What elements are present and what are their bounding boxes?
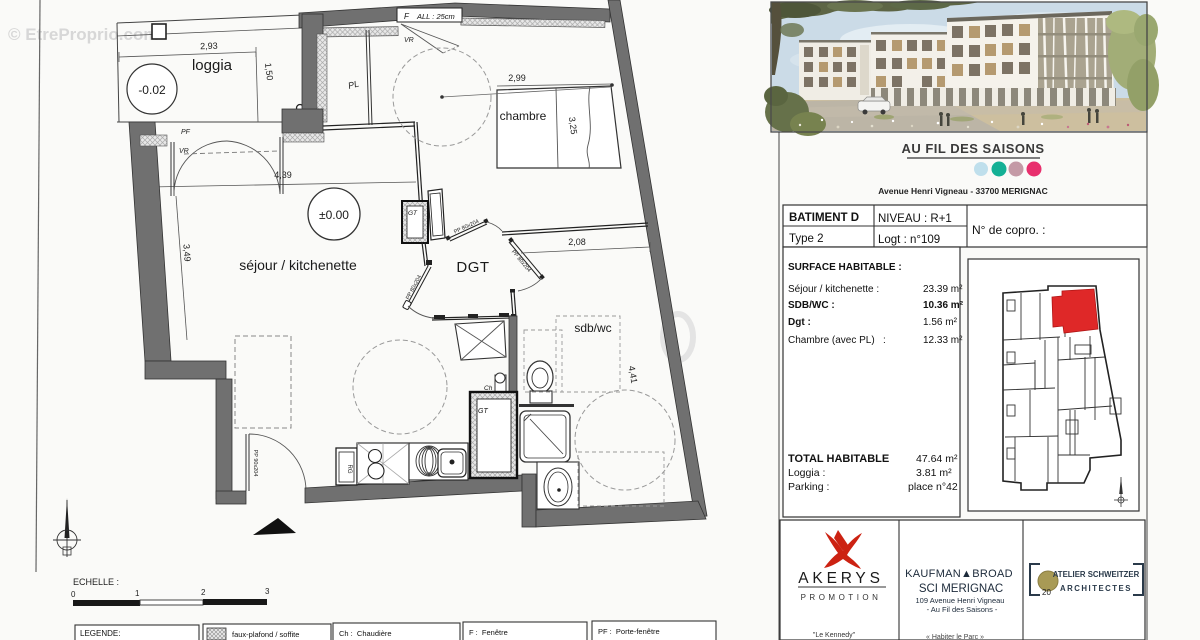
svg-text:© EtreProprio.com: © EtreProprio.com [8,25,158,44]
svg-text:1,50: 1,50 [263,62,275,81]
svg-text:Parking :: Parking : [788,481,829,493]
svg-text:Séjour / kitchenette :: Séjour / kitchenette : [788,284,879,295]
svg-text:20: 20 [1042,588,1051,597]
svg-text:place n°42: place n°42 [908,481,958,493]
svg-text:F : Fenêtre: F : Fenêtre [469,628,508,637]
svg-text:SURFACE HABITABLE :: SURFACE HABITABLE : [788,262,902,273]
svg-text:LEGENDE:: LEGENDE: [80,629,120,638]
svg-text:loggia: loggia [192,57,233,74]
svg-text:GT: GT [408,210,418,217]
svg-text:0: 0 [71,590,76,599]
svg-text:VR: VR [404,37,414,44]
svg-text:ALL : 25cm: ALL : 25cm [416,12,455,21]
svg-text:10.36 m²: 10.36 m² [923,300,964,311]
svg-text:12.33 m²: 12.33 m² [923,335,963,346]
svg-text:Chambre (avec PL) :: Chambre (avec PL) : [788,335,886,346]
svg-text:PF: PF [181,129,191,136]
svg-text:faux-plafond / soffite: faux-plafond / soffite [232,630,299,639]
svg-text:PROMOTION: PROMOTION [801,593,882,602]
svg-text:2,08: 2,08 [568,237,586,247]
svg-text:SDB/WC :: SDB/WC : [788,300,835,311]
svg-text:2,93: 2,93 [200,41,218,52]
svg-text:23.39 m²: 23.39 m² [923,284,963,295]
svg-text:±0.00: ±0.00 [319,208,349,222]
svg-text:"Le Kennedy": "Le Kennedy" [813,632,856,639]
svg-text:Dgt :: Dgt : [788,317,811,328]
svg-text:KAUFMAN▲BROAD: KAUFMAN▲BROAD [905,568,1013,580]
svg-text:3.81 m²: 3.81 m² [916,467,952,479]
svg-text:2,99: 2,99 [508,73,526,83]
svg-text:Logt : n°109: Logt : n°109 [878,234,940,246]
svg-text:Ch : Chaudière: Ch : Chaudière [339,629,392,638]
svg-text:séjour / kitchenette: séjour / kitchenette [239,257,357,273]
svg-text:DGT: DGT [456,259,489,276]
svg-text:AU FIL DES SAISONS: AU FIL DES SAISONS [901,141,1044,156]
svg-text:1.56 m²: 1.56 m² [923,317,958,328]
svg-text:chambre: chambre [500,109,547,123]
svg-text:BATIMENT D: BATIMENT D [789,212,859,224]
svg-text:PF : Porte-fenêtre: PF : Porte-fenêtre [598,627,660,636]
svg-text:RG: RG [346,465,352,474]
svg-text:PP 90x204: PP 90x204 [252,450,258,477]
svg-text:NIVEAU : R+1: NIVEAU : R+1 [878,213,952,225]
svg-text:2: 2 [201,588,206,597]
svg-text:Loggia :: Loggia : [788,467,825,479]
svg-text:1: 1 [135,589,140,598]
svg-text:47.64 m²: 47.64 m² [916,453,958,465]
svg-text:« Habiter le Parc »: « Habiter le Parc » [926,634,984,640]
svg-text:AKERYS: AKERYS [798,570,883,587]
svg-text:ECHELLE :: ECHELLE : [73,577,119,587]
svg-text:-0.02: -0.02 [138,83,166,97]
svg-text:ATELIER SCHWEITZER: ATELIER SCHWEITZER [1053,570,1140,579]
svg-text:ARCHITECTES: ARCHITECTES [1060,584,1132,593]
svg-text:3,25: 3,25 [567,116,579,135]
svg-text:109 Avenue Henri Vigneau: 109 Avenue Henri Vigneau [916,596,1005,605]
svg-text:Type 2: Type 2 [789,233,824,245]
svg-text:sdb/wc: sdb/wc [574,321,611,335]
svg-text:TOTAL HABITABLE: TOTAL HABITABLE [788,453,889,465]
svg-text:Avenue Henri Vigneau - 33700 M: Avenue Henri Vigneau - 33700 MERIGNAC [878,186,1048,196]
svg-text:3,49: 3,49 [181,244,192,262]
svg-text:GT: GT [478,408,488,415]
svg-text:3: 3 [265,587,270,596]
svg-text:N° de copro. :: N° de copro. : [972,223,1046,237]
svg-text:- Au Fil des Saisons -: - Au Fil des Saisons - [927,605,998,614]
svg-text:SCI MERIGNAC: SCI MERIGNAC [919,583,1003,595]
